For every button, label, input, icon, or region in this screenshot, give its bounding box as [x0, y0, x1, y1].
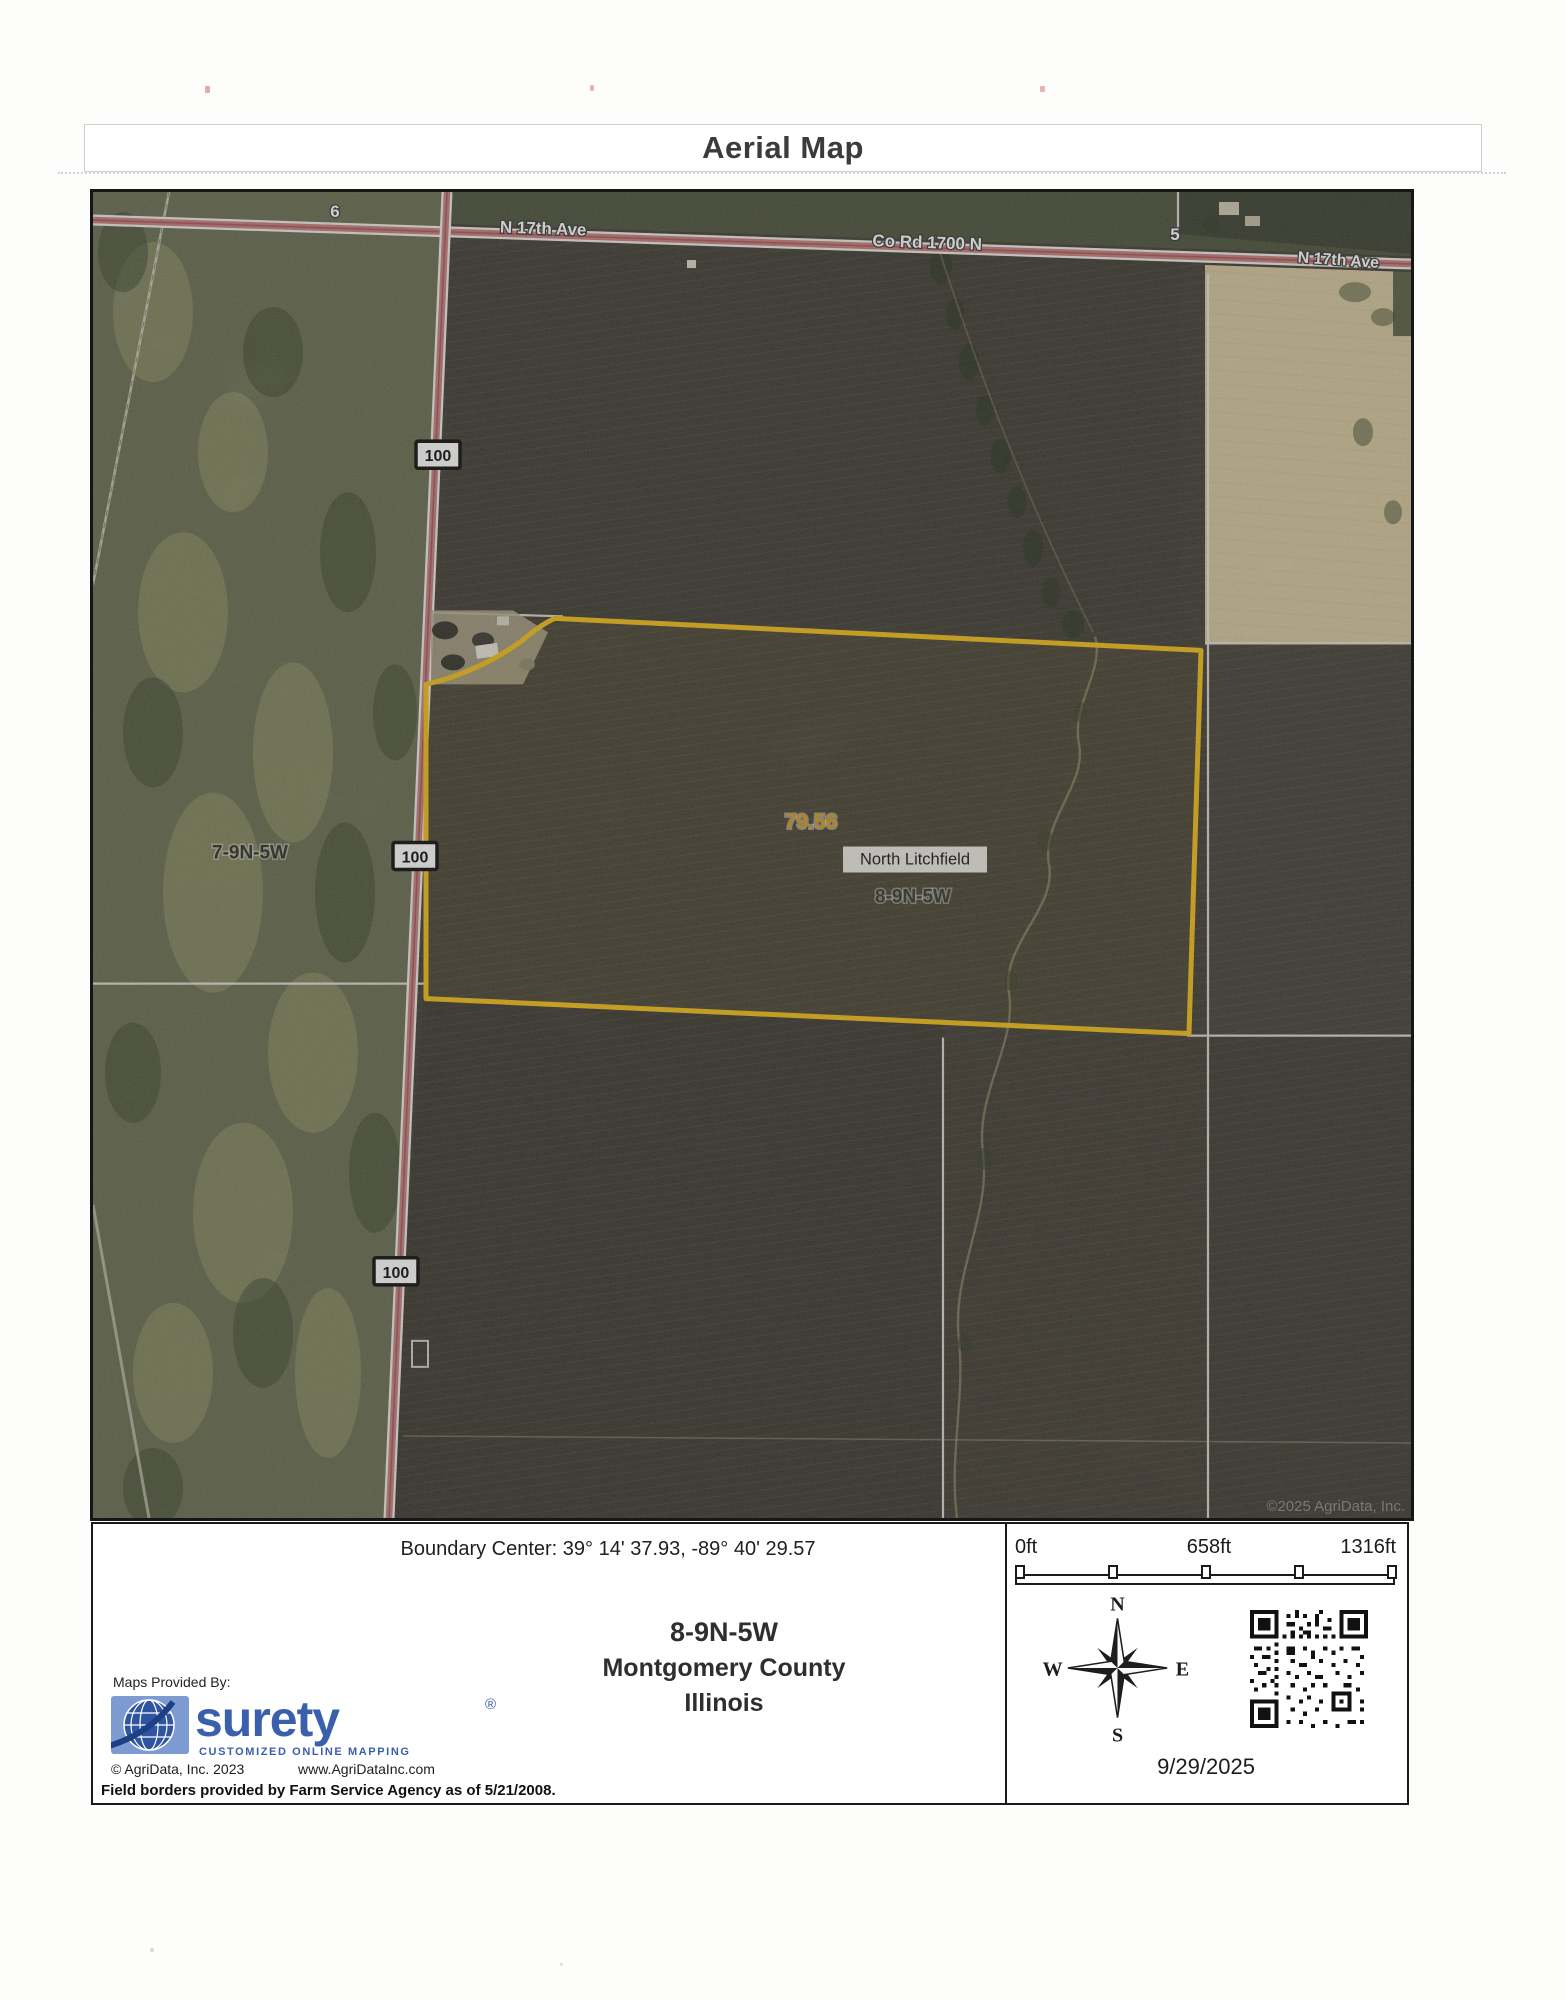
- surety-tagline: CUSTOMIZED ONLINE MAPPING: [199, 1746, 411, 1758]
- scale-label-zero: 0ft: [1015, 1536, 1037, 1559]
- footer: Boundary Center: 39° 14' 37.93, -89° 40'…: [91, 1522, 1409, 1805]
- scan-speck: [150, 1948, 154, 1952]
- grain-light-overlay: [93, 192, 1411, 1518]
- aerial-map-frame: 6 N 17th Ave Co Rd 1700 N 5 N 17th Ave 7…: [90, 189, 1414, 1521]
- agridata-website: www.AgriDataInc.com: [298, 1761, 435, 1777]
- title-box: Aerial Map: [84, 124, 1482, 172]
- qr-code: [1250, 1610, 1368, 1733]
- map-info-panel: 0ft 658ft 1316ft N S: [1005, 1524, 1411, 1803]
- scan-speck: [1040, 86, 1045, 92]
- scale-tick: [1108, 1565, 1118, 1579]
- compass-rose: N S W E: [1035, 1584, 1200, 1757]
- title-divider: [58, 172, 1506, 174]
- page: Aerial Map: [0, 0, 1565, 2000]
- scan-speck: [590, 85, 594, 91]
- scale-tick: [1387, 1565, 1397, 1579]
- surety-globe-icon: [111, 1696, 191, 1759]
- compass-west-label: W: [1043, 1659, 1063, 1681]
- scan-speck: [560, 1963, 563, 1966]
- scale-label-full: 1316ft: [1340, 1536, 1396, 1559]
- field-borders-disclaimer: Field borders provided by Farm Service A…: [101, 1782, 556, 1799]
- boundary-center-text: Boundary Center: 39° 14' 37.93, -89° 40'…: [93, 1538, 1123, 1561]
- aerial-map-image: 6 N 17th Ave Co Rd 1700 N 5 N 17th Ave 7…: [93, 192, 1411, 1518]
- map-date: 9/29/2025: [1007, 1754, 1405, 1780]
- agridata-copyright: © AgriData, Inc. 2023: [111, 1761, 244, 1777]
- scale-tick: [1015, 1565, 1025, 1579]
- scan-speck: [205, 86, 210, 93]
- surety-brand: surety: [195, 1690, 339, 1748]
- scale-tick: [1201, 1565, 1211, 1579]
- compass-south-label: S: [1112, 1725, 1123, 1747]
- compass-north-label: N: [1110, 1594, 1125, 1616]
- maps-provided-by-label: Maps Provided By:: [113, 1674, 231, 1690]
- registered-mark: ®: [485, 1696, 496, 1713]
- scale-tick: [1294, 1565, 1304, 1579]
- scale-label-mid: 658ft: [1187, 1536, 1231, 1559]
- compass-east-label: E: [1176, 1659, 1189, 1681]
- page-title: Aerial Map: [702, 130, 864, 166]
